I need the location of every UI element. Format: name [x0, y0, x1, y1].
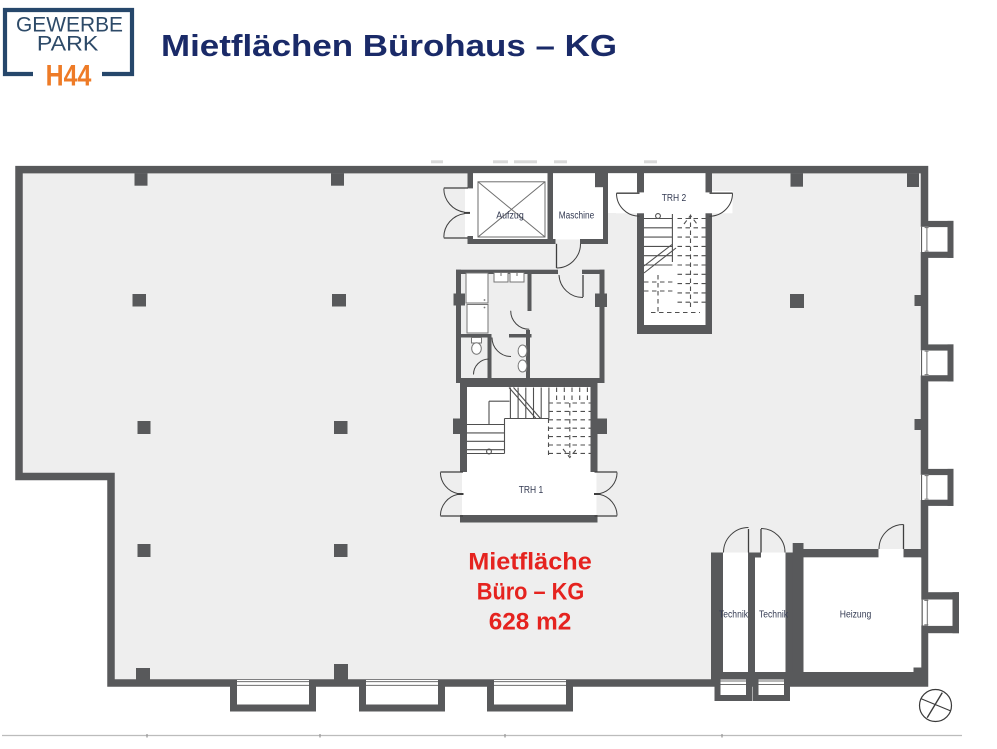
svg-text:Mietflächen Bürohaus – KG: Mietflächen Bürohaus – KG [161, 28, 617, 63]
svg-text:H44: H44 [46, 60, 92, 93]
svg-text:628 m2: 628 m2 [489, 609, 572, 636]
svg-text:Aufzug: Aufzug [496, 211, 524, 222]
svg-text:Mietfläche: Mietfläche [468, 549, 592, 576]
svg-text:Heizung: Heizung [840, 610, 872, 621]
svg-text:Büro – KG: Büro – KG [477, 579, 585, 606]
svg-text:Technik: Technik [719, 610, 749, 621]
svg-text:PARK: PARK [37, 32, 99, 56]
svg-text:Maschine: Maschine [559, 211, 595, 222]
svg-text:Technik: Technik [759, 610, 789, 621]
svg-text:TRH 1: TRH 1 [519, 485, 544, 496]
svg-text:TRH 2: TRH 2 [662, 193, 687, 204]
